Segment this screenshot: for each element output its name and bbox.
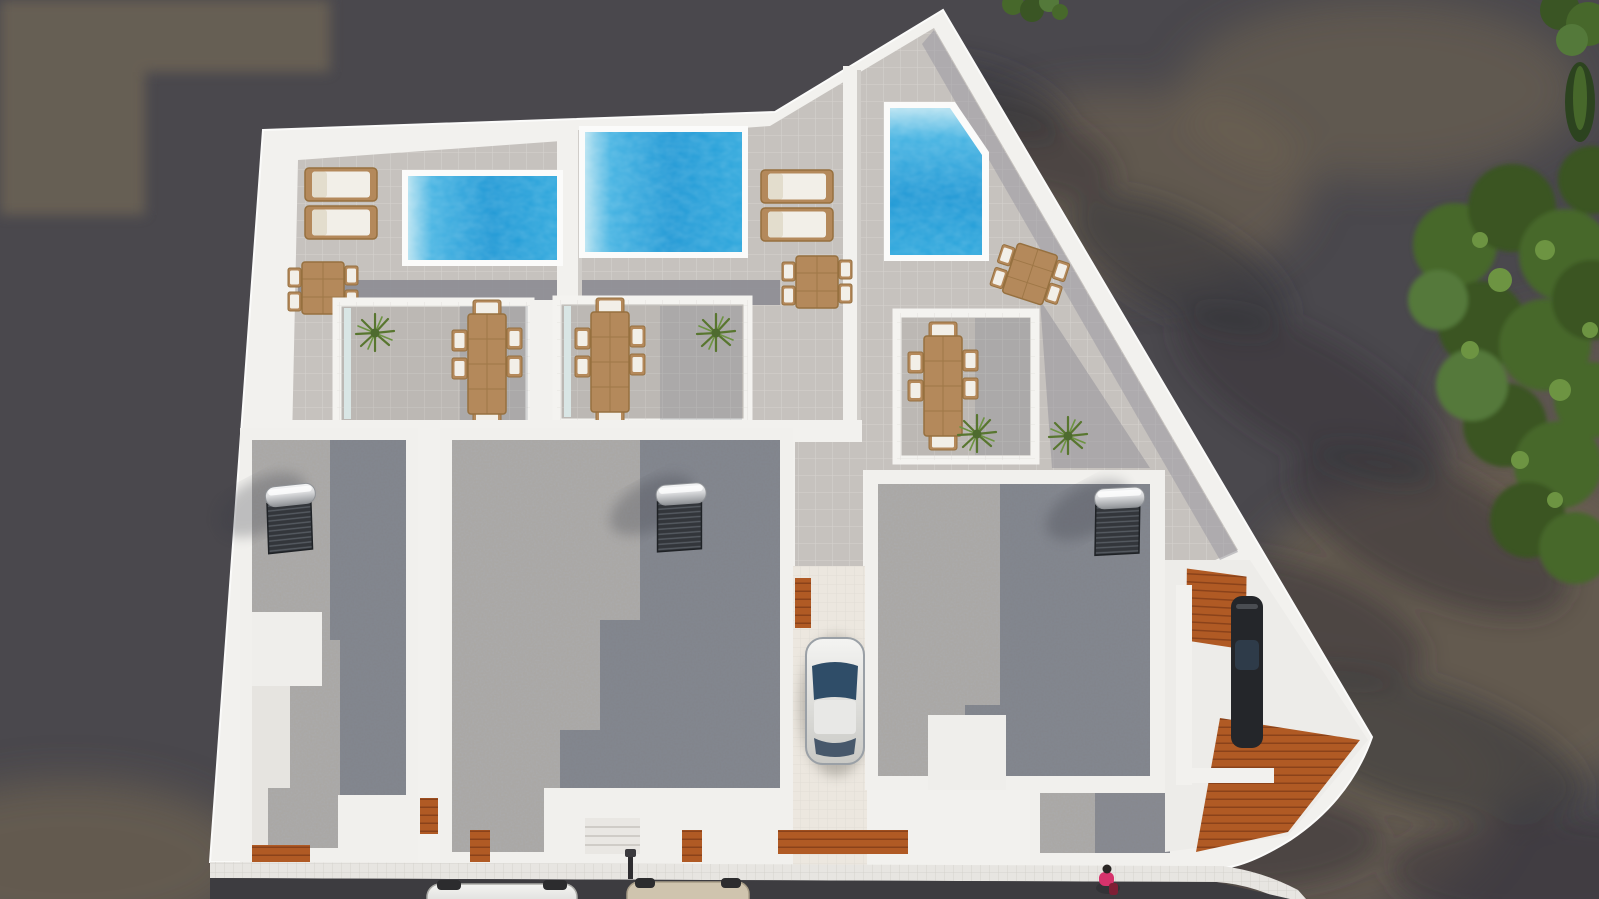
- gable-divider-wall-shade: [857, 70, 861, 470]
- driveway-car: [800, 636, 872, 776]
- lower-terrace-a: [337, 300, 530, 428]
- carport-car: [1231, 596, 1263, 748]
- unit1-roof-shadow: [330, 440, 406, 795]
- render-canvas: [0, 0, 1599, 899]
- unit2-gravel-lower-texture: [452, 788, 544, 852]
- wood-bench-1: [470, 830, 490, 862]
- unit2-roof: [418, 428, 793, 866]
- pedestrian-head: [1103, 865, 1112, 874]
- terrace-c-shadow: [975, 318, 1030, 455]
- solar-water-heater-2: [653, 482, 710, 552]
- wood-bench-2: [682, 830, 702, 862]
- bottom-deck-center: [778, 830, 908, 854]
- solar-water-heater-3: [1092, 487, 1148, 556]
- unit2-entry-stairs: [585, 818, 640, 854]
- unit3-extension-shadow: [1095, 793, 1170, 853]
- pedestrian-bag: [1109, 883, 1118, 895]
- pool-2-ripples: [585, 132, 742, 252]
- terrace-a-glass-balustrade: [344, 308, 351, 419]
- courtyard-wall-horizontal: [1176, 768, 1274, 783]
- aerial-render: [0, 0, 1599, 899]
- driveway-deck-strip: [795, 578, 811, 628]
- unit1-gravel-lower-texture: [268, 788, 338, 848]
- driveway-car-windshield: [812, 662, 858, 700]
- carport-car-hoodline: [1236, 604, 1258, 609]
- pool-2: [579, 126, 748, 258]
- unit3-lower-extension: [1030, 785, 1180, 865]
- lower-terrace-b: [557, 298, 748, 426]
- pool-1: [402, 170, 563, 266]
- unit1-wall-notch: [252, 612, 322, 686]
- terrace-b-shadow: [660, 306, 742, 422]
- courtyard-wall-vertical: [1176, 585, 1192, 785]
- carport-car-body: [1231, 596, 1263, 748]
- driveway-car-roof: [814, 700, 856, 734]
- tree-conifer: [1565, 62, 1595, 142]
- carport-car-windshield: [1235, 640, 1259, 670]
- corridor-tiles-grid: [795, 442, 863, 568]
- wood-ladder: [420, 798, 438, 834]
- pool-1-ripples: [408, 176, 557, 260]
- terrace-b-glass-balustrade: [564, 306, 571, 417]
- bottom-deck-left: [252, 845, 310, 862]
- unit3-courtyard-notch: [928, 715, 1006, 790]
